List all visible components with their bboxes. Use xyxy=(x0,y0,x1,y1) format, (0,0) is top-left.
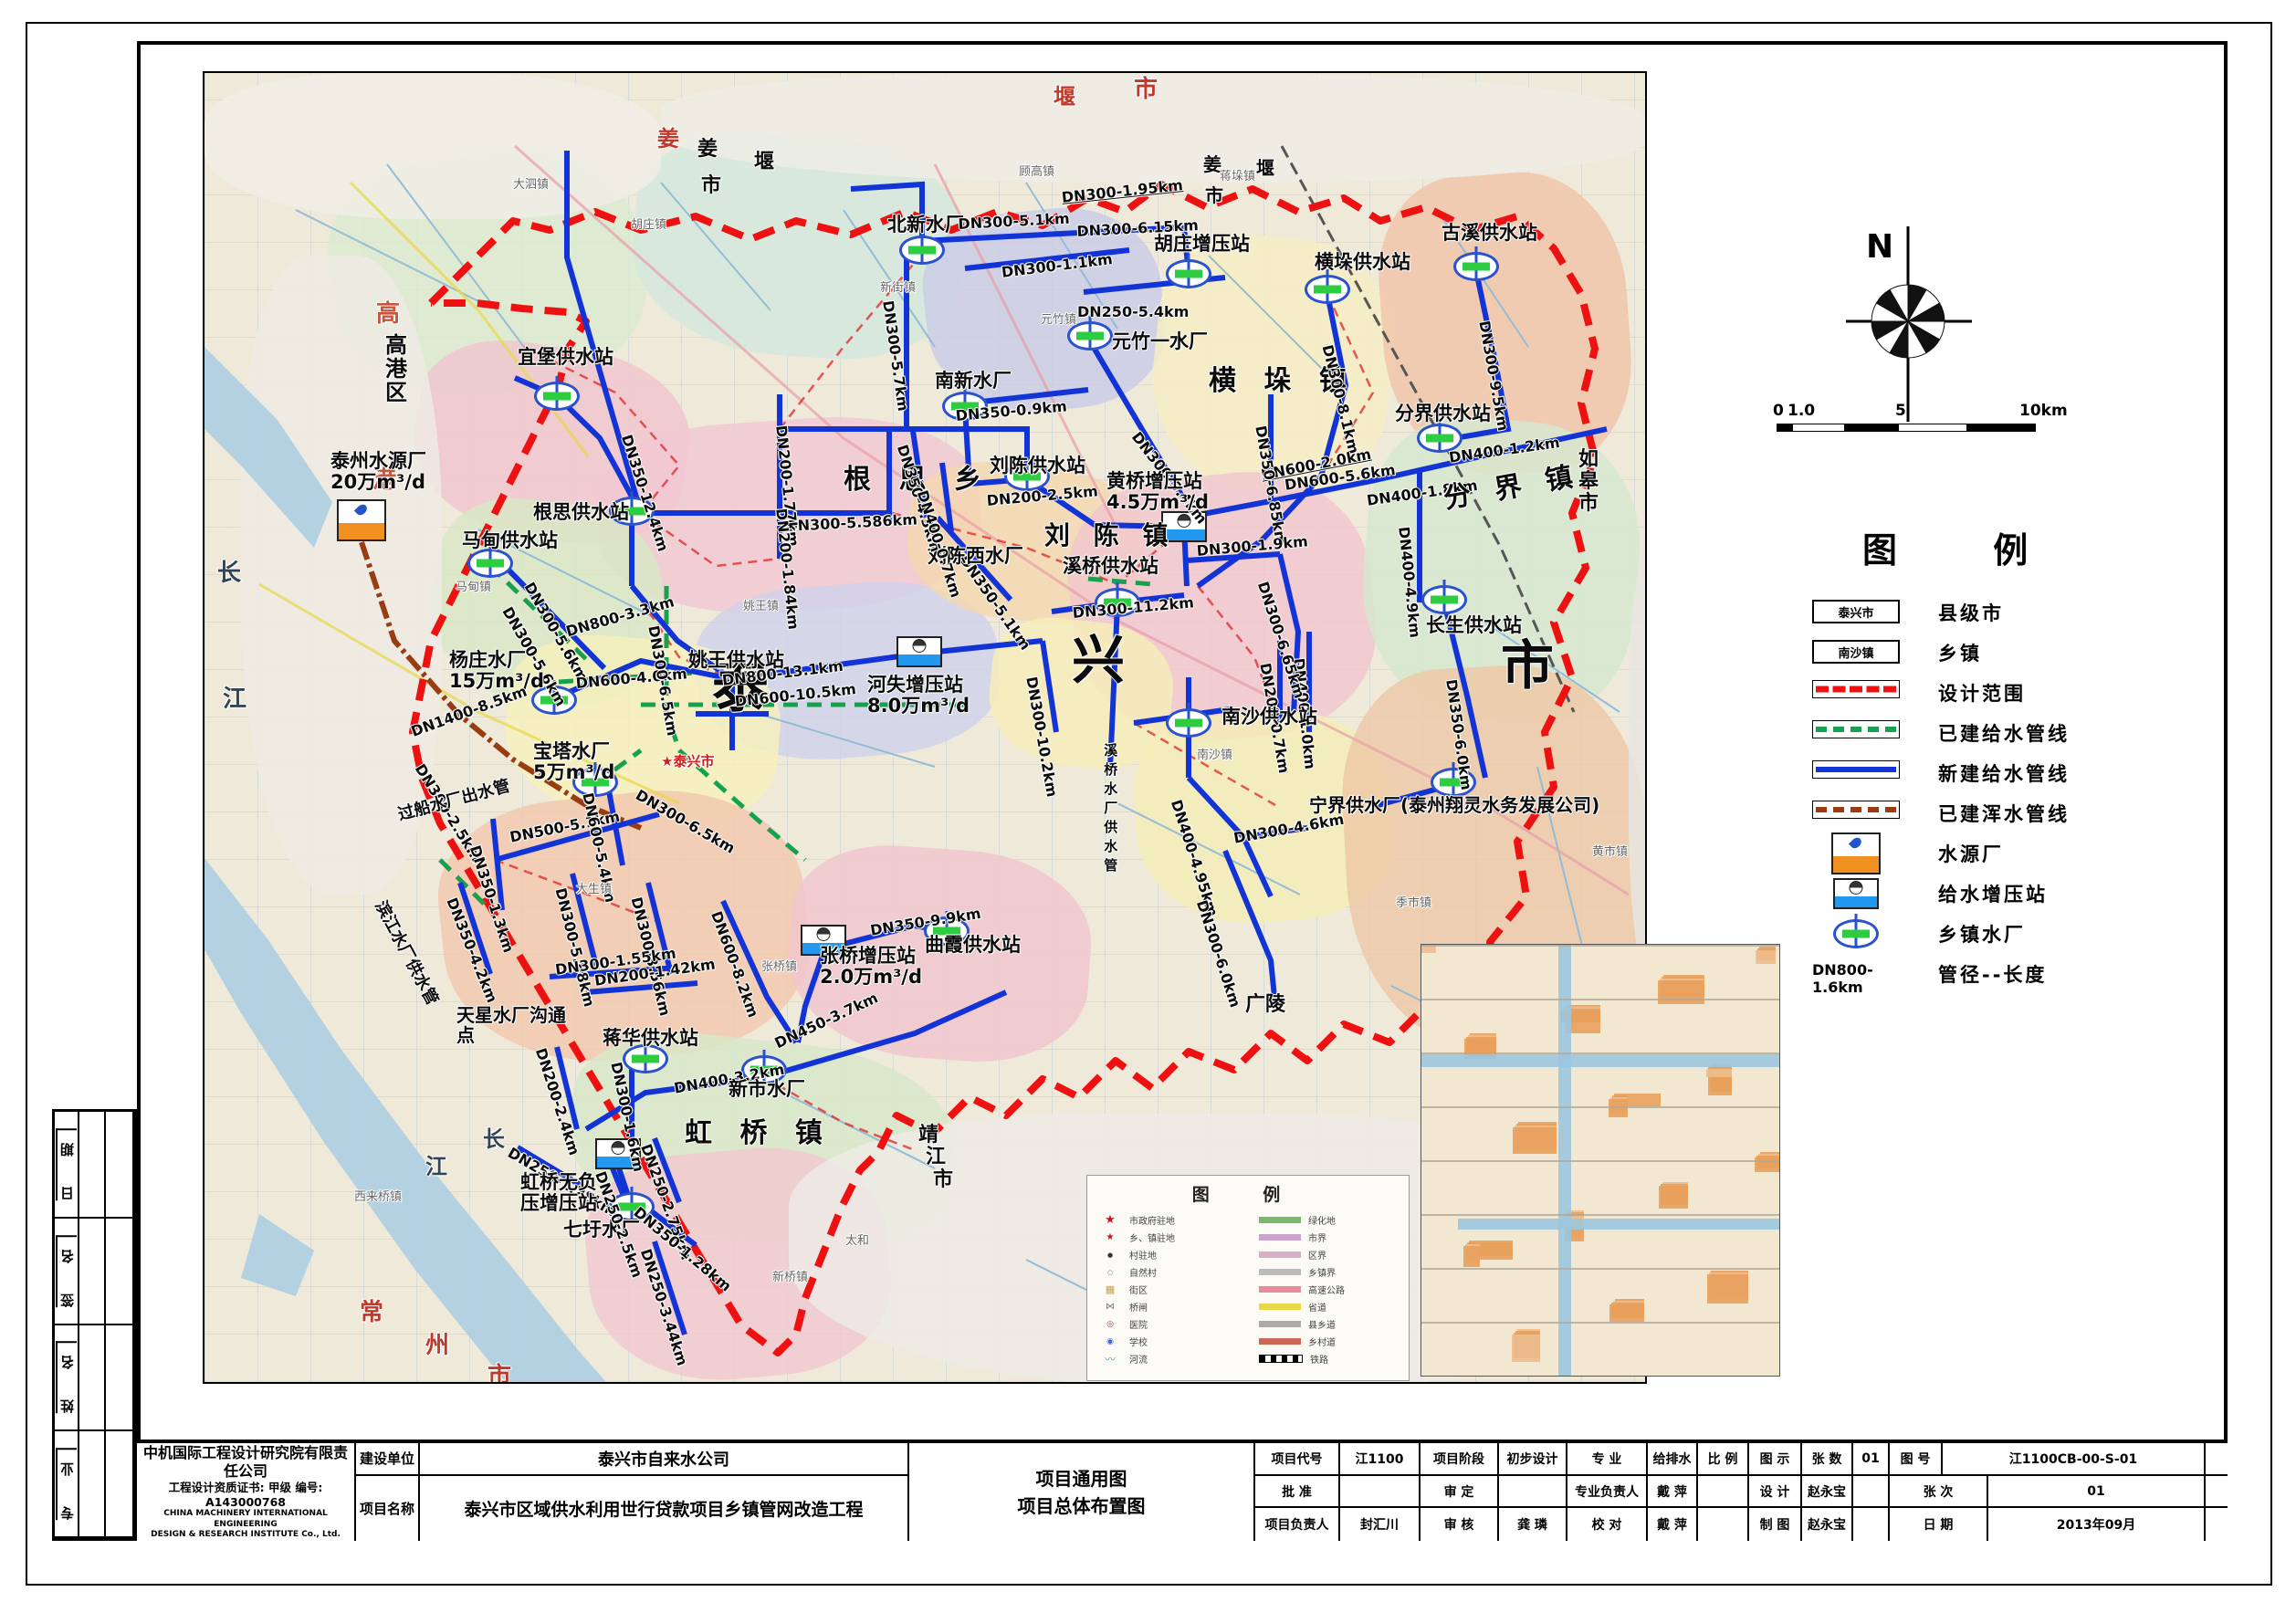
scale-segment xyxy=(1845,424,1898,432)
pipe-new xyxy=(965,390,1088,403)
scale-bar: 01.0510km xyxy=(1771,402,2054,456)
pipe-new xyxy=(495,814,659,860)
field-cell: 张 次 xyxy=(1890,1476,1988,1507)
pipe-new xyxy=(645,1207,696,1245)
inset-road xyxy=(1421,1322,1779,1324)
legend-item: 设计范围 xyxy=(1812,680,2250,705)
title-block: 中机国际工程设计研究院有限责任公司工程设计资质证书: 甲级 编号: A14300… xyxy=(137,1440,2228,1541)
basemap-legend-item: ◎医院 xyxy=(1098,1315,1248,1333)
sign-cell xyxy=(79,1219,106,1325)
field-cell: 给排水 xyxy=(1648,1443,1698,1474)
legend-item: 已建给水管线 xyxy=(1812,720,2250,745)
pipe-existing xyxy=(1088,579,1152,584)
field-cell: 审 定 xyxy=(1421,1476,1499,1507)
inset-block xyxy=(1707,1274,1748,1304)
pipe-existing xyxy=(679,750,805,860)
drawing-title: 项目通用图项目总体布置图 xyxy=(909,1443,1255,1541)
scale-label: 1.0 xyxy=(1788,402,1815,420)
field-cell: 项目代号 xyxy=(1255,1443,1340,1474)
inset-road xyxy=(1421,999,1779,1000)
pipe-new xyxy=(1084,277,1225,292)
owner-value: 泰兴市自来水公司 xyxy=(420,1443,909,1476)
pipe-existing xyxy=(559,673,696,682)
field-cell: 龚 璘 xyxy=(1499,1508,1567,1541)
scale-segment xyxy=(1898,424,1967,432)
field-cell: 设 计 xyxy=(1749,1476,1802,1507)
basemap-legend-title: 图 例 xyxy=(1087,1181,1409,1206)
basemap-legend-item: ★市政府驻地 xyxy=(1098,1211,1248,1229)
pipe-new xyxy=(1444,271,1508,440)
field-cell xyxy=(1853,1476,1890,1507)
legend-item: 水源厂 xyxy=(1812,841,2250,865)
pipe-new xyxy=(1371,785,1452,807)
legend-label: 管径--长度 xyxy=(1938,960,2047,988)
inset-road xyxy=(1421,1214,1779,1216)
field-cell: 校 对 xyxy=(1567,1508,1648,1541)
legend-sample: 南沙镇 xyxy=(1812,640,1900,665)
inset-road xyxy=(1421,1268,1779,1270)
pipe-new xyxy=(1225,851,1275,1006)
pipe-new xyxy=(557,1047,577,1129)
field-cell: 封汇川 xyxy=(1340,1508,1421,1541)
legend-label: 乡镇 xyxy=(1938,639,1982,666)
legend-label: 县级市 xyxy=(1938,599,2004,626)
pipe-new xyxy=(493,819,502,910)
legend-label: 已建给水管线 xyxy=(1938,719,2070,747)
sign-row-label: 姓 名 xyxy=(55,1325,79,1432)
pipe-new xyxy=(1090,341,1184,499)
field-cell: 比 例 xyxy=(1698,1443,1749,1474)
field-cell: 01 xyxy=(1853,1443,1890,1474)
river-line xyxy=(387,164,524,347)
basemap-legend-item: 县乡道 xyxy=(1259,1315,1409,1333)
river-body xyxy=(241,1214,314,1296)
pipe-new xyxy=(826,926,944,948)
legend-sample xyxy=(1812,841,1900,865)
field-cell: 赵永宝 xyxy=(1802,1476,1853,1507)
pipe-new xyxy=(965,250,1129,268)
river-line xyxy=(752,712,935,767)
pipe-new xyxy=(723,901,796,1042)
basemap-legend: 图 例 ★市政府驻地★乡、镇驻地●村驻地○自然村▦街区⋈桥闸◎医院◉学校〰河流绿… xyxy=(1086,1175,1410,1381)
field-cell: 图 示 xyxy=(1749,1443,1802,1474)
pipe-existing xyxy=(490,566,586,659)
river-body xyxy=(204,347,332,548)
legend-item: 给水增压站 xyxy=(1812,881,2250,906)
pipe-new xyxy=(1243,828,1307,837)
legend-sample: DN800-1.6km xyxy=(1812,961,1900,986)
sign-cell xyxy=(79,1325,106,1432)
field-cell: 戴 萍 xyxy=(1648,1476,1698,1507)
basemap-legend-item: 省道 xyxy=(1259,1298,1409,1315)
sign-cell xyxy=(106,1431,134,1538)
field-cell xyxy=(1853,1508,1890,1541)
field-cell: 日 期 xyxy=(1890,1508,1988,1541)
river-line xyxy=(1483,621,1620,712)
basemap-legend-item: 乡村道 xyxy=(1259,1333,1409,1350)
pipe-new xyxy=(1134,709,1230,723)
pipe-new xyxy=(922,227,1189,274)
legend-label: 乡镇水厂 xyxy=(1938,920,2026,948)
legend-sample xyxy=(1812,760,1900,785)
legend-sample xyxy=(1812,801,1900,825)
field-cell: 01 xyxy=(1988,1476,2206,1507)
basemap-legend-item: ⋈桥闸 xyxy=(1098,1298,1248,1315)
pipe-new xyxy=(1187,554,1280,560)
township-boundary xyxy=(1198,586,1280,723)
sign-row-label: 日 期 xyxy=(55,1112,79,1219)
sign-cell xyxy=(79,1112,106,1219)
pipe-new xyxy=(567,151,641,513)
owner-label: 建设单位 xyxy=(356,1443,420,1476)
field-cell xyxy=(1340,1476,1421,1507)
pipe-new xyxy=(1043,641,1056,732)
sign-cell xyxy=(106,1325,134,1432)
river-body xyxy=(204,858,606,1382)
pipe-new xyxy=(1184,527,1187,586)
pipe-new xyxy=(518,1147,586,1188)
svg-text:N: N xyxy=(1866,228,1893,266)
legend-panel: 图 例 泰兴市县级市南沙镇乡镇设计范围已建给水管线新建给水管线已建浑水管线水源厂… xyxy=(1812,522,2250,1001)
sign-cell xyxy=(106,1112,134,1219)
field-cell: 初步设计 xyxy=(1499,1443,1567,1474)
drawing-sheet: 宜堡供水站北新水厂DN300-5.1kmDN300-6.15kmDN300-1.… xyxy=(0,0,2296,1602)
legend-sample xyxy=(1812,881,1900,906)
legend-item: 乡镇水厂 xyxy=(1812,921,2250,946)
design-scope-boundary xyxy=(413,184,1595,1353)
township-boundary xyxy=(641,513,780,566)
pipe-new xyxy=(780,429,1027,476)
basemap-legend-item: ◉学校 xyxy=(1098,1333,1248,1350)
sign-row-label: 签 名 xyxy=(55,1219,79,1325)
inset-block xyxy=(1659,1186,1688,1209)
township-boundary xyxy=(764,1077,915,1150)
river-line xyxy=(1117,803,1300,895)
field-cell: 审 核 xyxy=(1421,1508,1499,1541)
field-cell: 江1100 xyxy=(1340,1443,1421,1474)
inset-block xyxy=(1463,1246,1480,1267)
inset-block xyxy=(1658,980,1704,1004)
pipe-new xyxy=(1184,429,1607,518)
scale-label: 0 xyxy=(1773,402,1784,420)
legend-label: 设计范围 xyxy=(1938,679,2026,707)
inset-river xyxy=(1458,1219,1779,1230)
pipe-new xyxy=(1110,604,1117,769)
field-cell: 张 数 xyxy=(1802,1443,1853,1474)
field-cell: 图 号 xyxy=(1890,1443,1943,1474)
signature-strip: 日 期签 名姓 名专 业 xyxy=(52,1109,137,1541)
legend-label: 给水增压站 xyxy=(1938,880,2048,907)
scale-label: 10km xyxy=(2019,402,2068,420)
basemap-legend-item: 高速公路 xyxy=(1259,1281,1409,1298)
inset-block xyxy=(1706,1069,1732,1077)
inset-river xyxy=(1421,1054,1779,1067)
pipe-new xyxy=(1444,602,1485,778)
legend-title: 图 例 xyxy=(1862,522,2250,572)
pipe-new xyxy=(499,560,604,668)
sign-cell xyxy=(79,1431,106,1538)
pipe-new xyxy=(1420,469,1444,602)
legend-item: DN800-1.6km管径--长度 xyxy=(1812,961,2250,986)
inset-block xyxy=(1609,1099,1628,1117)
legend-label: 水源厂 xyxy=(1938,840,2004,867)
inset-block xyxy=(1513,1127,1557,1154)
pipe-new xyxy=(586,983,697,992)
pipe-new xyxy=(965,408,1027,484)
inset-block xyxy=(1512,1335,1540,1362)
inset-block xyxy=(1756,950,1776,964)
basemap-legend-item: ★乡、镇驻地 xyxy=(1098,1229,1248,1246)
basemap-legend-item: ●村驻地 xyxy=(1098,1246,1248,1263)
pipe-new xyxy=(913,431,926,518)
sign-row-label: 专 业 xyxy=(55,1431,79,1538)
river-line xyxy=(296,210,478,301)
field-cell: 批 准 xyxy=(1255,1476,1340,1507)
field-cell xyxy=(1698,1476,1749,1507)
basemap-legend-item: ○自然村 xyxy=(1098,1263,1248,1281)
inset-road xyxy=(1421,1160,1779,1162)
pipe-new xyxy=(586,992,1006,1129)
inset-road xyxy=(1421,1052,1779,1054)
basemap-legend-item: ▦街区 xyxy=(1098,1281,1248,1298)
field-cell: 专业负责人 xyxy=(1567,1476,1648,1507)
pipe-new xyxy=(648,883,671,974)
basemap-legend-item: 〰河流 xyxy=(1098,1350,1248,1367)
basemap-legend-item: 铁路 xyxy=(1259,1350,1409,1367)
inset-road xyxy=(1421,1106,1779,1108)
field-cell xyxy=(1499,1476,1567,1507)
legend-label: 已建浑水管线 xyxy=(1938,800,2070,827)
field-cell: 江1100CB-00-S-01 xyxy=(1943,1443,2206,1474)
scale-segment xyxy=(1792,424,1845,432)
field-cell: 赵永宝 xyxy=(1802,1508,1853,1541)
legend-item: 新建给水管线 xyxy=(1812,760,2250,785)
legend-item: 泰兴市县级市 xyxy=(1812,600,2250,624)
project-label: 项目名称 xyxy=(356,1476,420,1541)
inset-road xyxy=(1421,945,1779,947)
field-cell: 项目负责人 xyxy=(1255,1508,1340,1541)
field-cell: 专 业 xyxy=(1567,1443,1648,1474)
pipe-new xyxy=(655,1241,685,1335)
design-institute: 中机国际工程设计研究院有限责任公司工程设计资质证书: 甲级 编号: A14300… xyxy=(137,1443,356,1541)
pipe-new xyxy=(550,968,677,977)
north-arrow: N xyxy=(1835,219,1981,429)
sign-cell xyxy=(106,1219,134,1325)
pipe-raw-water xyxy=(362,542,641,828)
scale-segment xyxy=(1967,424,2036,432)
inset-city-map xyxy=(1421,944,1780,1377)
inset-block xyxy=(1609,1304,1644,1322)
legend-sample: 泰兴市 xyxy=(1812,600,1900,624)
field-cell: 戴 萍 xyxy=(1648,1508,1698,1541)
legend-sample xyxy=(1812,680,1900,705)
pipe-new xyxy=(798,953,823,1042)
pipe-new xyxy=(632,586,732,679)
field-cell: 项目阶段 xyxy=(1421,1443,1499,1474)
pipe-new xyxy=(572,874,597,969)
river-line xyxy=(1209,256,1346,393)
basemap-legend-item: 市界 xyxy=(1259,1229,1409,1246)
basemap-legend-item: 绿化地 xyxy=(1259,1211,1409,1229)
legend-item: 南沙镇乡镇 xyxy=(1812,640,2250,665)
field-cell: 制 图 xyxy=(1749,1508,1802,1541)
township-boundary xyxy=(780,254,922,429)
basemap-legend-item: 乡镇界 xyxy=(1259,1263,1409,1281)
field-cell: 2013年09月 xyxy=(1988,1508,2206,1541)
legend-item: 已建浑水管线 xyxy=(1812,801,2250,825)
scale-segment xyxy=(1777,424,1792,432)
pipe-new xyxy=(732,641,1043,679)
legend-sample xyxy=(1812,921,1900,946)
field-cell xyxy=(1698,1508,1749,1541)
legend-sample xyxy=(1812,720,1900,745)
legend-label: 新建给水管线 xyxy=(1938,759,2070,787)
basemap-legend-item: 区界 xyxy=(1259,1246,1409,1263)
scale-label: 5 xyxy=(1895,402,1906,420)
road-provincial xyxy=(351,183,588,456)
project-value: 泰兴市区域供水利用世行贷款项目乡镇管网改造工程 xyxy=(420,1476,909,1541)
